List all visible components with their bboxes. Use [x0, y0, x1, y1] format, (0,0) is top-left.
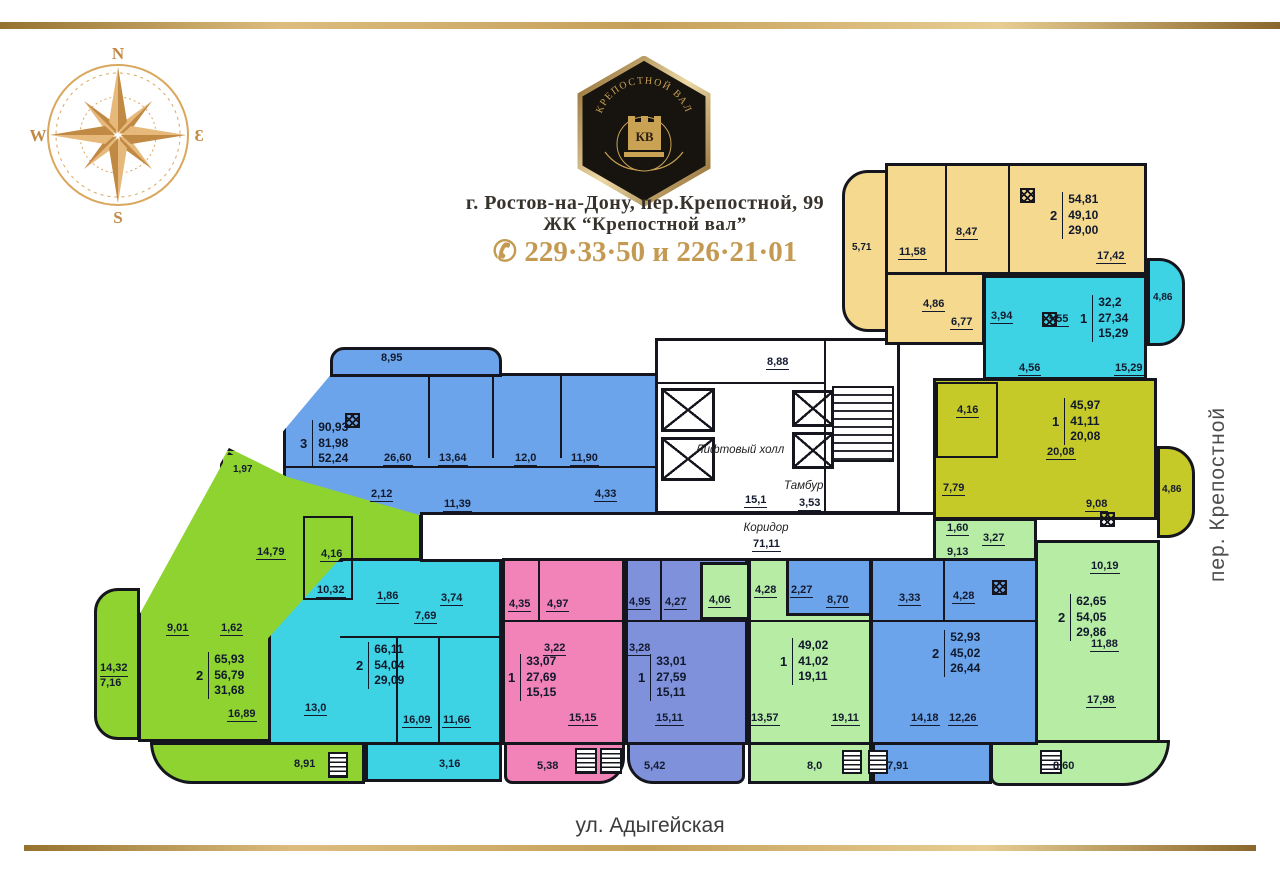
room-area-label: 12,26 — [948, 712, 978, 726]
room-area-label: 17,42 — [1096, 250, 1126, 264]
compass-west-label: W — [30, 126, 47, 145]
room-area-label: 13,57 — [750, 712, 780, 726]
floor-plan-poster: N Ɛ S W КРЕПОСТНОЙ ВАЛ КВ г. Ростов-на-Д… — [0, 0, 1280, 896]
ladder-icon — [328, 752, 348, 778]
room-area-label: 16,89 — [227, 708, 257, 722]
balcony-area-label: 5,71 — [851, 242, 872, 254]
balcony-area-label: 8,0 — [806, 760, 823, 773]
balcony-area-label: 4,86 — [1161, 484, 1182, 496]
room-area-label: 4,33 — [594, 488, 617, 502]
tambur-area-label: 3,53 — [798, 497, 821, 511]
vestibule-area-label: 8,88 — [766, 356, 789, 370]
room-area-label: 14,18 — [910, 712, 940, 726]
room-area-label: 2,12 — [370, 488, 393, 502]
room-area-label: 17,98 — [1086, 694, 1116, 708]
apartment-summary: 1 49,0241,0219,11 — [780, 638, 828, 685]
room-area-label: 4,16 — [956, 404, 979, 418]
company-logo: КРЕПОСТНОЙ ВАЛ КВ — [575, 56, 713, 206]
compass-rose-icon: N Ɛ S W — [30, 42, 206, 228]
tambur-label: Тамбур — [784, 480, 823, 492]
balcony-area-label: 4,86 — [1152, 292, 1173, 304]
room-area-label: 19,11 — [831, 712, 860, 726]
ladder-icon — [842, 750, 862, 774]
bathroom-outline — [936, 382, 998, 458]
elevator-shaft-icon — [792, 432, 834, 469]
room-area-label: 4,35 — [508, 598, 531, 612]
balcony-area-label: 5,42 — [643, 760, 666, 773]
ladder-icon — [868, 750, 888, 774]
balcony-area-label: 7,91 — [886, 760, 909, 773]
room-area-label: 2,27 — [790, 584, 813, 598]
balcony-area-label: 3,16 — [438, 758, 461, 771]
room-area-label: 11,58 — [898, 246, 927, 260]
room-area-label: 1,86 — [376, 590, 399, 604]
room-area-label: 4,28 — [952, 590, 975, 604]
apartment-summary: 1 33,0727,6915,15 — [508, 654, 556, 701]
apartment-summary: 2 66,1154,0429,09 — [356, 642, 404, 689]
room-area-label: 14,79 — [256, 546, 286, 560]
room-area-label: 10,32 — [316, 584, 346, 598]
phone-icon: ✆ — [493, 236, 517, 268]
room-area-label: 3,94 — [990, 310, 1013, 324]
room-area-label: 20,08 — [1046, 446, 1076, 460]
room-area-label: 15,11 — [655, 712, 684, 726]
room-area-label: 1,60 — [946, 522, 969, 536]
room-area-label: 1,62 — [220, 622, 243, 636]
balcony-area-label: 8,95 — [380, 352, 403, 365]
ladder-icon — [575, 748, 597, 774]
street-label-krepostnoy: пер. Крепостной — [1206, 392, 1230, 582]
room-area-label: 9,01 — [166, 622, 189, 636]
apartment-summary: 2 52,9345,0226,44 — [932, 630, 980, 677]
room-area-label: 15,29 — [1114, 362, 1144, 376]
room-area-label: 16,09 — [402, 714, 432, 728]
compass-north-label: N — [112, 44, 125, 63]
vent-shaft-icon — [1100, 512, 1115, 527]
room-area-label: 15,15 — [568, 712, 598, 726]
vent-shaft-icon — [1020, 188, 1035, 203]
balcony-area-label: 5,38 — [536, 760, 559, 773]
room-area-label: 13,64 — [438, 452, 468, 466]
room-area-label: 4,97 — [546, 598, 569, 612]
room-area-label: 8,70 — [826, 594, 849, 608]
room-area-label: 9,08 — [1085, 498, 1108, 512]
apartment-summary: 3 90,9381,9852,24 — [300, 420, 348, 467]
apartment-summary: 1 32,227,3415,29 — [1080, 295, 1128, 342]
top-gold-rule — [0, 22, 1280, 29]
balcony-area-label: 8,91 — [293, 758, 316, 771]
corridor — [420, 512, 936, 562]
lift-hall-label: Лифтовый холл — [690, 444, 790, 456]
elevator-shaft-icon — [661, 388, 715, 432]
room-area-label: 4,28 — [754, 584, 777, 598]
ladder-icon — [600, 748, 622, 774]
apartment-summary: 2 54,8149,1029,00 — [1050, 192, 1098, 239]
apartment-lightgreen-bottom-nub — [700, 562, 750, 620]
street-label-adygeyskaya: ул. Адыгейская — [490, 814, 810, 838]
room-area-label: 4,56 — [1018, 362, 1041, 376]
room-area-label: 4,86 — [922, 298, 945, 312]
room-area-label: 11,66 — [442, 714, 471, 728]
room-area-label: 11,39 — [443, 498, 472, 512]
address-line-1: г. Ростов-на-Дону, пер.Крепостной, 99 — [430, 192, 860, 215]
apartment-summary: 1 33,0127,5915,11 — [638, 654, 686, 701]
apartment-summary: 1 45,9741,1120,08 — [1052, 398, 1100, 445]
balcony-blue-top — [330, 347, 502, 377]
room-area-label: 10,19 — [1090, 560, 1120, 574]
room-area-label: 13,0 — [304, 702, 327, 716]
compass-south-label: S — [113, 208, 122, 227]
bottom-gold-rule — [24, 845, 1256, 851]
room-area-label: 12,0 — [514, 452, 537, 466]
corridor-area-label: 71,11 — [752, 538, 781, 552]
room-area-label: 9,13 — [946, 546, 969, 560]
room-area-label: 3,74 — [440, 592, 463, 606]
phone-numbers: 229·33·50 и 226·21·01 — [524, 236, 797, 268]
room-area-label: 8,47 — [955, 226, 978, 240]
balcony-area-label: 8,60 — [1052, 760, 1075, 773]
hall-area-label: 15,1 — [744, 494, 767, 508]
elevator-shaft-icon — [792, 390, 834, 427]
phone-row: ✆ 229·33·50 и 226·21·01 — [400, 234, 890, 269]
balcony-cyan-bottom — [365, 742, 502, 782]
room-area-label: 4,16 — [320, 548, 343, 562]
room-area-label: 7,69 — [414, 610, 437, 624]
apartment-summary: 2 62,6554,0529,86 — [1058, 594, 1106, 641]
room-area-label: 1,97 — [232, 464, 253, 476]
vent-shaft-icon — [992, 580, 1007, 595]
compass-east-label: Ɛ — [195, 126, 204, 145]
room-area-label: 7,79 — [942, 482, 965, 496]
balcony-area-label: 14,327,16 — [100, 662, 128, 691]
room-area-label: 3,27 — [982, 532, 1005, 546]
room-area-label: 4,27 — [664, 596, 687, 610]
room-area-label: 6,77 — [950, 316, 973, 330]
room-area-label: 4,06 — [708, 594, 731, 608]
room-area-label: 4,95 — [628, 596, 651, 610]
corridor-label: Коридор — [716, 522, 816, 534]
address-line-2: ЖК “Крепостной вал” — [430, 214, 860, 236]
apartment-summary: 2 65,9356,7931,68 — [196, 652, 244, 699]
room-area-label: 26,60 — [383, 452, 413, 466]
staircase-icon — [832, 386, 894, 462]
room-area-label: 3,55 — [1046, 313, 1069, 327]
room-area-label: 11,90 — [570, 452, 599, 466]
room-area-label: 3,33 — [898, 592, 921, 606]
balcony-lightgreen-right — [990, 740, 1170, 786]
logo-monogram: КВ — [635, 129, 653, 144]
